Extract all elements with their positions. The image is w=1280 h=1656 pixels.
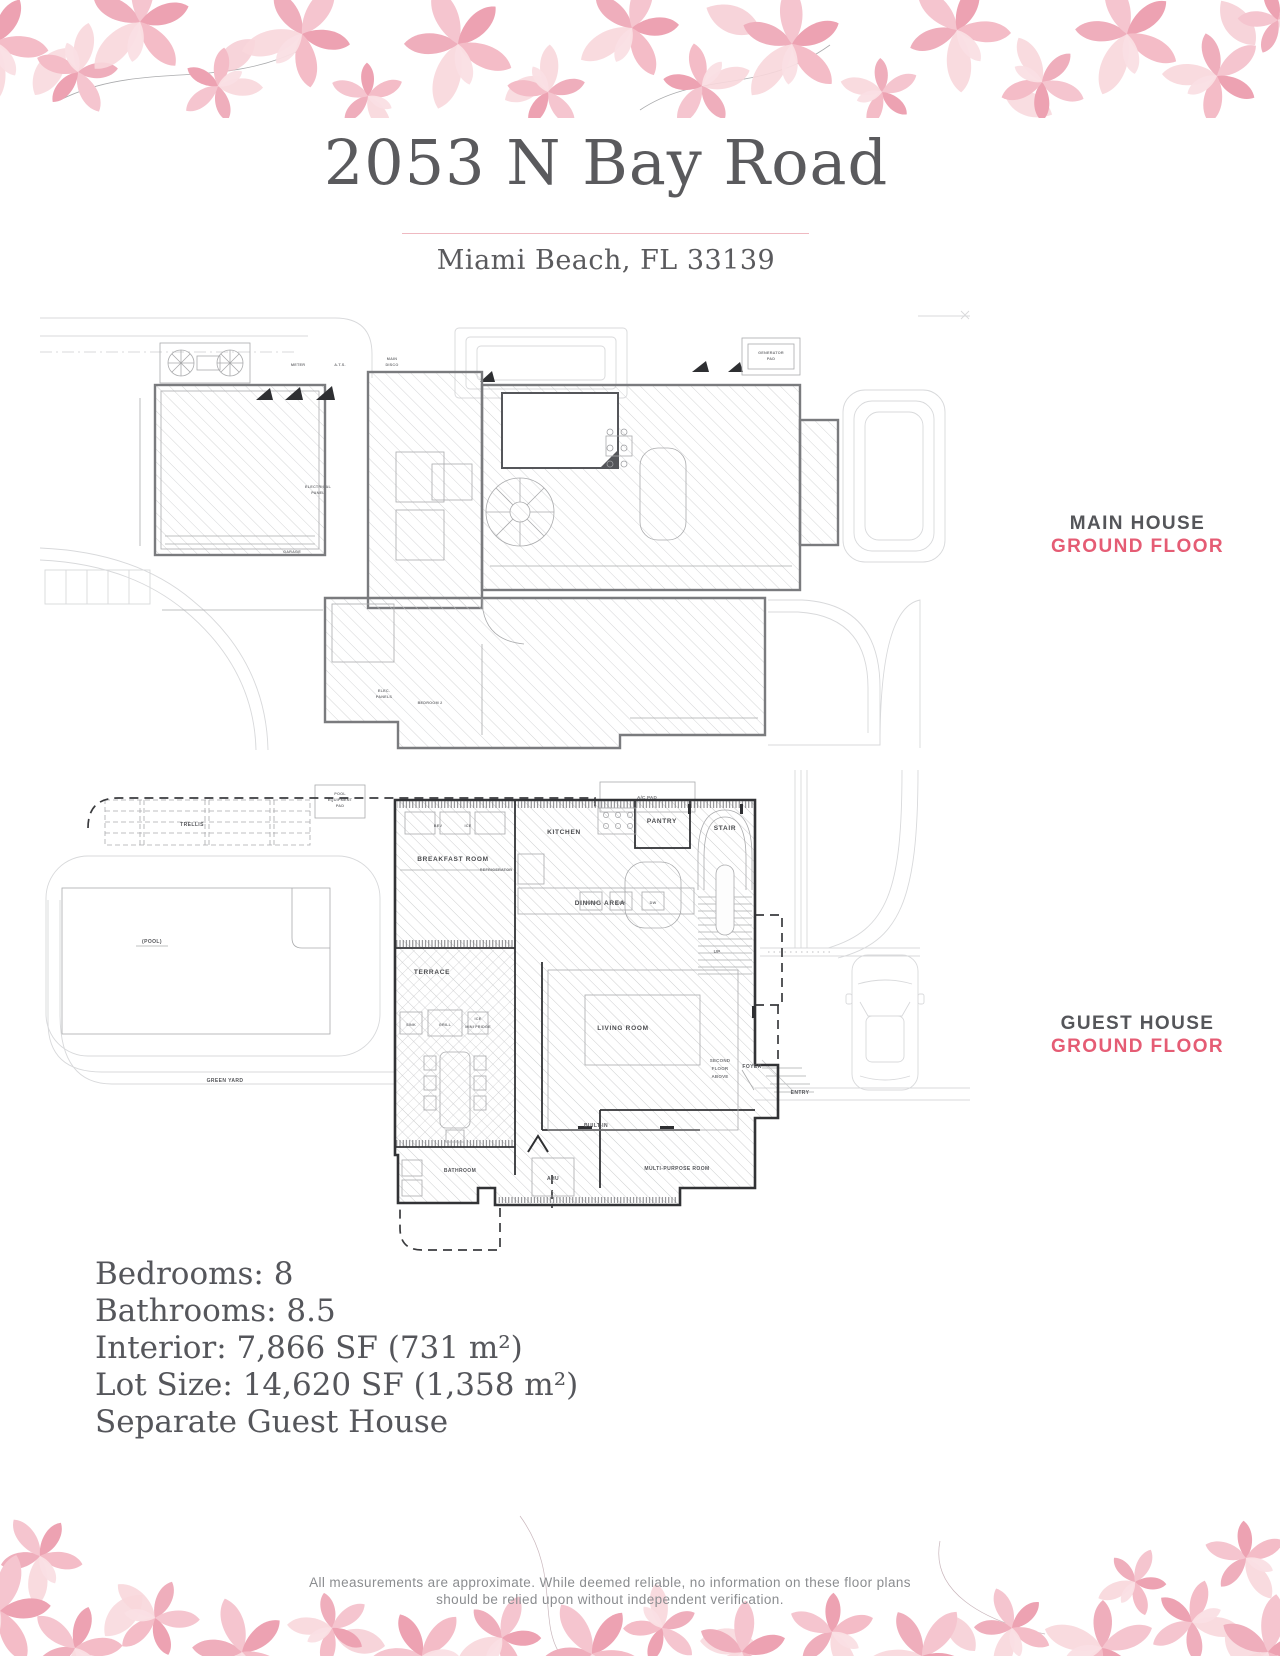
second-floor-label: SECOND [710, 1058, 731, 1063]
electrical-panel-label: ELECTRICAL [305, 485, 332, 489]
entry-label: ENTRY [791, 1090, 810, 1096]
up-label: UP [714, 949, 721, 954]
page-subtitle: Miami Beach, FL 33139 [437, 245, 775, 276]
guest-house-label-floor: GROUND FLOOR [1051, 1035, 1224, 1058]
main-house-label-title: MAIN HOUSE [1051, 512, 1224, 535]
disclaimer: All measurements are approximate. While … [0, 1574, 1220, 1608]
ahu-label: AHU [547, 1176, 559, 1182]
trellis [105, 800, 310, 845]
detail-bedrooms: Bedrooms: 8 [95, 1256, 578, 1293]
ice-label: ICE [465, 824, 472, 828]
page-title: 2053 N Bay Road [0, 126, 1212, 199]
flyer-page: 2053 N Bay Road Miami Beach, FL 33139 [0, 0, 1280, 1656]
svg-text:ICE: ICE [475, 1017, 482, 1021]
meter-label: METER [291, 363, 305, 367]
property-details: Bedrooms: 8 Bathrooms: 8.5 Interior: 7,8… [95, 1256, 578, 1441]
svg-text:PANEL: PANEL [311, 491, 325, 495]
stair-label: STAIR [714, 825, 737, 832]
bev-label: BEV [434, 824, 443, 828]
terrace-label: TERRACE [414, 969, 450, 976]
refrigerator-label: REFRIGERATOR [480, 868, 512, 872]
breakfast-room-label: BREAKFAST ROOM [417, 856, 489, 863]
svg-text:SINK: SINK [406, 1023, 416, 1027]
title-divider [402, 233, 809, 234]
disclaimer-line-1: All measurements are approximate. While … [309, 1575, 911, 1590]
main-house-floorplan: GENERATOR PAD A.T.S. METER MAIN DISCO EL… [40, 308, 970, 768]
detail-lot-size: Lot Size: 14,620 SF (1,358 m²) [95, 1367, 578, 1404]
green-yard-label: GREEN YARD [207, 1078, 244, 1084]
header-flowers [0, 0, 1280, 118]
svg-text:PANELS: PANELS [376, 695, 393, 699]
pantry-label: PANTRY [647, 818, 677, 825]
detail-bathrooms: Bathrooms: 8.5 [95, 1293, 578, 1330]
bedroom-label: BEDROOM 2 [418, 701, 443, 705]
svg-text:DW: DW [650, 901, 657, 905]
svg-text:PAD: PAD [336, 804, 344, 808]
bathroom-label: BATHROOM [444, 1168, 476, 1174]
multi-purpose-room-label: MULTI-PURPOSE ROOM [644, 1166, 709, 1172]
ats-label: A.T.S. [334, 363, 346, 367]
generator-pad-label: GENERATOR [758, 351, 784, 355]
living-room-label: LIVING ROOM [597, 1025, 648, 1032]
floral-footer-band [0, 1486, 1280, 1656]
svg-text:TRASH: TRASH [584, 901, 598, 905]
guest-house-label-title: GUEST HOUSE [1051, 1012, 1224, 1035]
main-house-label-floor: GROUND FLOOR [1051, 535, 1224, 558]
svg-text:DISCO: DISCO [385, 363, 398, 367]
main-disco-label: MAIN [387, 357, 398, 361]
svg-text:MINI FRIDGE: MINI FRIDGE [465, 1025, 491, 1029]
guest-house-floorplan: TRELLIS POOL EQUIPMENT PAD (POOL) GREEN … [40, 770, 970, 1262]
elec-panels-label: ELEC. [378, 689, 390, 693]
trellis-label: TRELLIS [180, 822, 204, 828]
main-house-label: MAIN HOUSE GROUND FLOOR [1051, 512, 1224, 558]
pool-label: (POOL) [142, 939, 162, 945]
foyer-label: FOYER [742, 1064, 761, 1070]
garage-label: GARAGE [283, 550, 301, 554]
svg-text:FLOOR: FLOOR [712, 1066, 729, 1071]
pool: (POOL) [46, 856, 380, 1056]
disclaimer-line-2: should be relied upon without independen… [436, 1592, 784, 1607]
floral-header-band [0, 0, 1280, 118]
svg-text:SINK: SINK [616, 901, 626, 905]
svg-text:ABOVE: ABOVE [711, 1074, 728, 1079]
svg-text:PAD: PAD [767, 357, 775, 361]
car [846, 955, 924, 1090]
main-building: GENERATOR PAD [155, 338, 838, 748]
kitchen-label: KITCHEN [547, 829, 581, 836]
pool-equipment-pad-label: POOL [334, 792, 346, 796]
detail-interior: Interior: 7,866 SF (731 m²) [95, 1330, 578, 1367]
svg-text:GRILL: GRILL [439, 1023, 452, 1027]
detail-guest-house: Separate Guest House [95, 1404, 578, 1441]
guest-house-label: GUEST HOUSE GROUND FLOOR [1051, 1012, 1224, 1058]
built-in-label: BUILT-IN [584, 1123, 608, 1129]
